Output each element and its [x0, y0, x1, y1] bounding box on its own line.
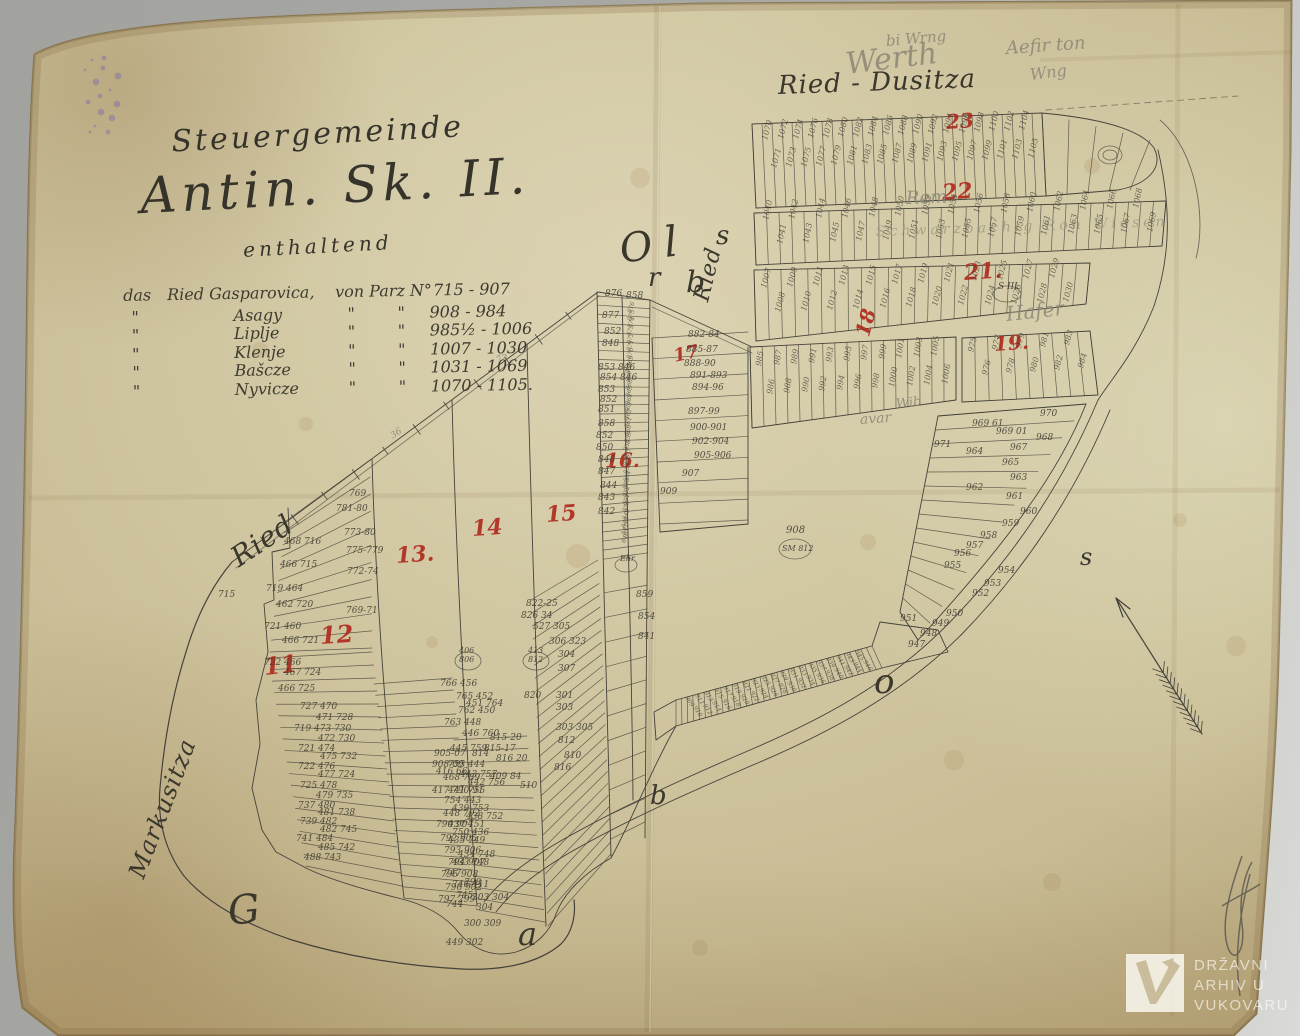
legend-row-name: Liplje: [234, 324, 280, 344]
watermark-line3: VUKOVARU: [1194, 996, 1289, 1016]
legend-row-d2: ": [398, 321, 406, 340]
legend-row-name: Bašcze: [234, 360, 291, 380]
title-block: Steuergemeinde Antin. Sk. II. enthaltend: [137, 106, 534, 267]
legend-row-d1: ": [348, 322, 356, 341]
legend-row-d1: ": [348, 359, 356, 378]
legend-row-name: Asagy: [233, 305, 282, 325]
legend-row-d1: ": [348, 341, 356, 360]
legend-intro-range: 715 - 907: [433, 279, 510, 299]
archive-logo: [1126, 954, 1184, 1012]
legend-row-name: Klenje: [234, 342, 286, 362]
legend-row-c1: ": [132, 363, 140, 382]
legend-row-range: 1070 - 1105.: [431, 374, 533, 395]
legend-row-range: 1031 - 1069: [430, 356, 527, 377]
legend-row-d2: ": [399, 377, 407, 396]
legend-row-d2: ": [398, 358, 406, 377]
legend-row-range: 1007 - 1030: [430, 338, 527, 359]
legend-intro-ried: Ried Gasparovica,: [167, 283, 315, 305]
legend-row-d2: ": [398, 340, 406, 359]
legend-row-c1: ": [132, 344, 140, 363]
map-title-line2: Antin. Sk. II.: [139, 147, 532, 225]
legend-row-c1: ": [133, 381, 141, 400]
watermark-line1: DRŽAVNI: [1194, 956, 1289, 976]
legend-intro-das: das: [123, 285, 151, 304]
legend-row-c1: ": [131, 308, 139, 327]
legend-row-d1: ": [347, 304, 355, 323]
legend-row-d1: ": [349, 377, 357, 396]
legend-row-name: Nyvicze: [235, 378, 299, 398]
legend-row-d2: ": [397, 303, 405, 322]
legend-intro-parz: von Parz N°: [335, 281, 432, 302]
legend-row-range: 908 - 984: [429, 301, 506, 321]
legend-row-c1: ": [132, 326, 140, 345]
scanned-cadastral-map: Ried - DusitzaRiedRiedMarkusitzaOrlsbbos…: [0, 0, 1300, 1036]
watermark-line2: ARHIV U: [1194, 976, 1289, 996]
